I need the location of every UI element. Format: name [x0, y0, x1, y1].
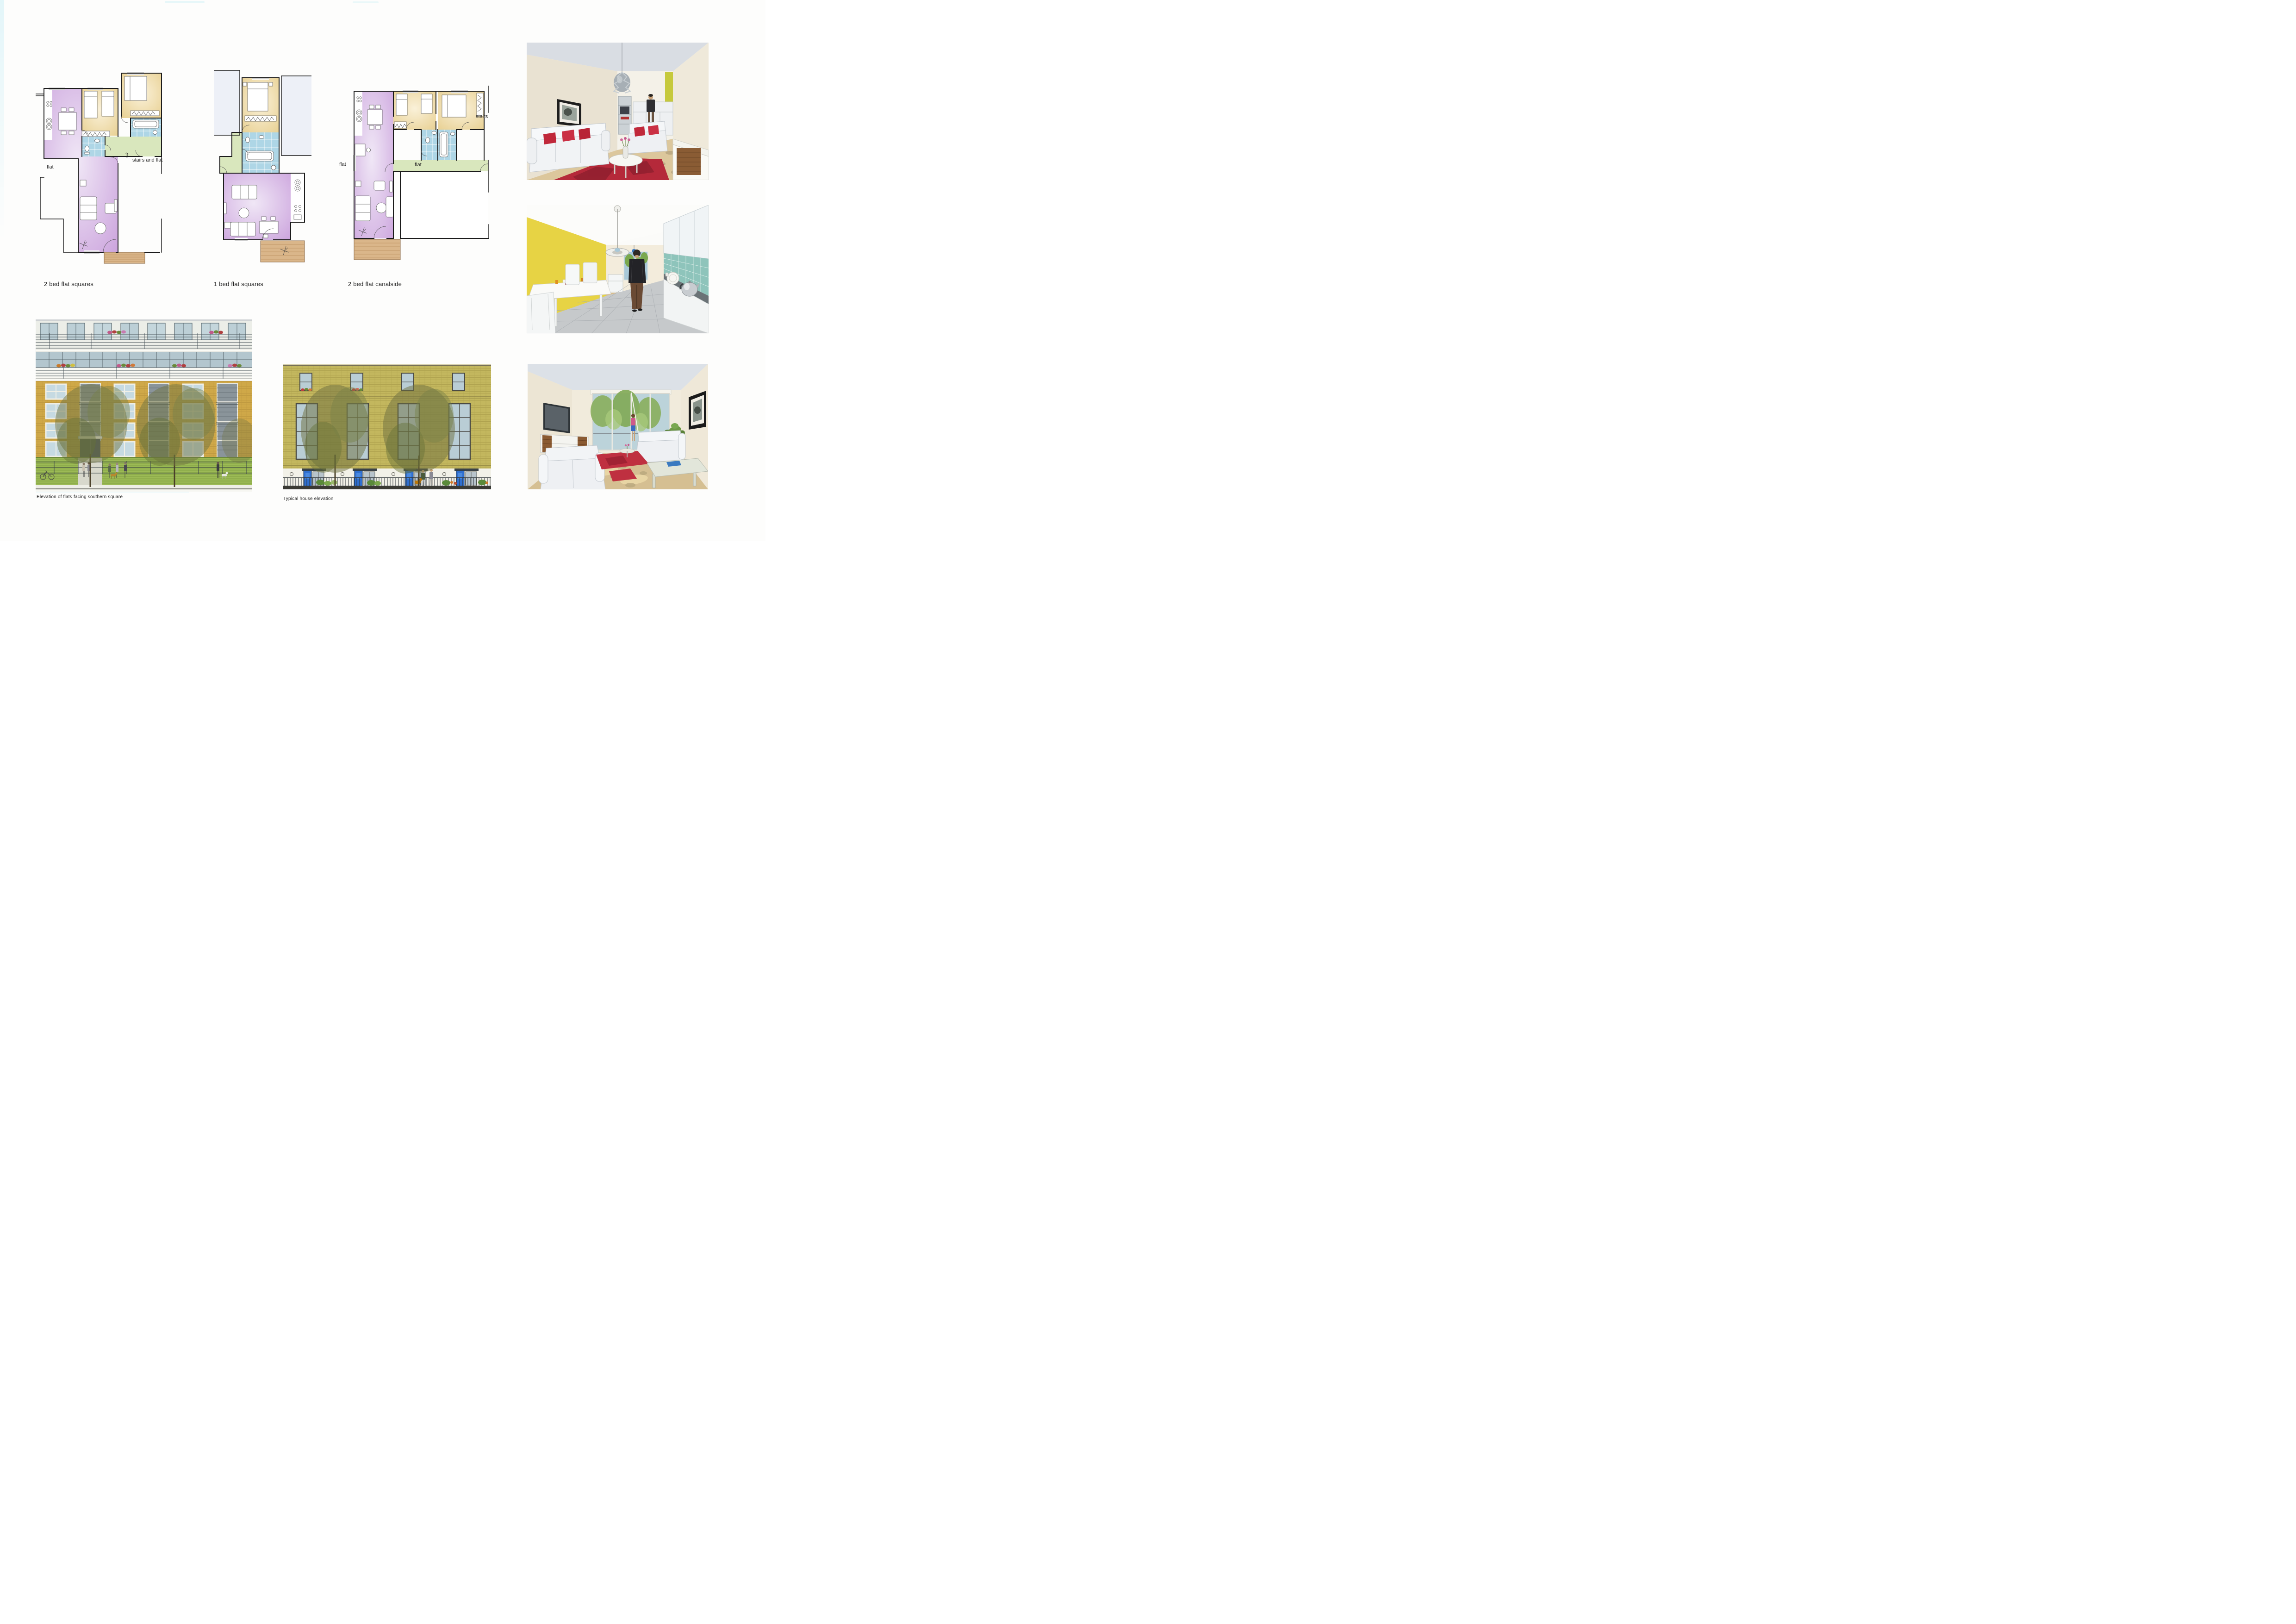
flats-elevation-drawing [36, 319, 252, 492]
side-table [355, 181, 361, 187]
caption-plan-2bed-squares: 2 bed flat squares [44, 281, 93, 287]
caption-plan-2bed-canalside: 2 bed flat canalside [348, 281, 402, 287]
elevation-typical-house [283, 364, 491, 489]
living-room-render [527, 43, 709, 180]
floor-plan-2bed-squares-drawing [36, 66, 172, 264]
elevation-flats [36, 319, 252, 492]
floor-plan-2bed-canalside-drawing [347, 86, 495, 262]
floor-plan-1bed-squares [214, 69, 311, 264]
basin [153, 131, 157, 135]
floor-plan-2bed-canalside [347, 86, 495, 262]
tv [620, 106, 629, 114]
label-flat-plan1: flat [47, 164, 54, 170]
neighbour-flat [214, 70, 240, 135]
entry-hall [220, 156, 242, 173]
bed [102, 91, 114, 116]
wardrobe [394, 122, 406, 128]
bed [84, 91, 97, 118]
red-cushion [634, 126, 645, 137]
yellow-accent-wall [665, 72, 673, 103]
caption-elevation-house: Typical house elevation [283, 496, 334, 501]
render-kitchen [527, 205, 709, 333]
scan-artifact [165, 1, 205, 3]
adjacent-flat-area [400, 171, 488, 238]
wardrobe [245, 116, 276, 121]
hall [232, 132, 242, 156]
floor-slab [36, 349, 252, 352]
label-flat-left: flat [339, 162, 346, 167]
scan-artifact [353, 1, 379, 3]
bathtub [246, 151, 274, 161]
red-cushion [543, 132, 556, 144]
tv-unit [390, 181, 392, 192]
basin [432, 131, 436, 135]
wardrobe [82, 131, 110, 137]
red-cushion [562, 130, 575, 142]
sofa [232, 185, 257, 199]
side-table [80, 180, 86, 186]
sofa-small [628, 121, 667, 154]
kitchen-strip [44, 88, 52, 140]
bed [396, 94, 407, 115]
roof-capping [36, 319, 252, 321]
render-living-room-squares [527, 43, 709, 180]
floor-slab [36, 379, 252, 381]
label-stairs: stairs [476, 114, 488, 119]
wall-tv [543, 403, 570, 433]
cup [666, 273, 668, 276]
house-elevation-drawing [283, 364, 491, 489]
timber-deck [354, 239, 400, 260]
render-living-room-canalside [528, 364, 708, 489]
wardrobe [131, 111, 159, 116]
sofa [80, 197, 97, 220]
toilet [85, 146, 89, 154]
coffee-table [376, 203, 386, 213]
armchair-foreground [539, 445, 605, 489]
tv-unit [114, 200, 117, 212]
caption-plan-1bed-squares: 1 bed flat squares [214, 281, 263, 287]
timber-deck [261, 241, 305, 262]
plate [667, 272, 679, 284]
coffee-table [95, 223, 106, 234]
framed-picture [557, 99, 581, 127]
bathtub [133, 120, 159, 128]
toilet [246, 137, 250, 143]
fence [283, 478, 491, 487]
mug [563, 280, 566, 283]
hallway [393, 160, 488, 171]
basin [95, 139, 100, 143]
living-room-balcony-render [528, 364, 708, 489]
scan-artifact [0, 0, 4, 241]
floor-plan-1bed-squares-drawing [214, 69, 311, 264]
basin [259, 136, 264, 139]
wardrobe [477, 93, 483, 116]
basin [450, 132, 455, 136]
basin [271, 165, 276, 170]
neighbour-flat [281, 76, 311, 156]
sofa [355, 196, 370, 221]
red-cushion [648, 125, 659, 135]
hallway [105, 137, 162, 156]
label-stairs-and-flat: stairs and flat [132, 157, 162, 163]
sofa-large [527, 123, 610, 172]
sofa [230, 222, 255, 236]
timber-deck [104, 252, 145, 263]
caption-elevation-flats: Elevation of flats facing southern squar… [37, 494, 123, 500]
juice-cup [555, 280, 558, 284]
top-floor-glazing [36, 321, 252, 349]
toilet [426, 137, 430, 143]
bed [421, 94, 432, 113]
framed-picture [689, 391, 706, 430]
armchair [374, 181, 385, 190]
floor-plan-2bed-squares [36, 66, 172, 264]
up-arrow-icon: ⇧ [124, 152, 130, 158]
kitchen-render [527, 205, 709, 333]
chaise [386, 197, 393, 217]
red-cushion [579, 128, 591, 140]
coffee-table [239, 208, 249, 218]
architectural-sheet: flat ⇧ stairs and flat 2 bed flat square… [0, 0, 765, 541]
ground-line [283, 486, 491, 489]
label-flat-right: flat [415, 162, 422, 168]
bathtub [440, 132, 448, 157]
double-bed [442, 95, 466, 117]
side-table [224, 222, 230, 228]
back-sideboard [608, 275, 623, 292]
double-bed [124, 76, 147, 100]
